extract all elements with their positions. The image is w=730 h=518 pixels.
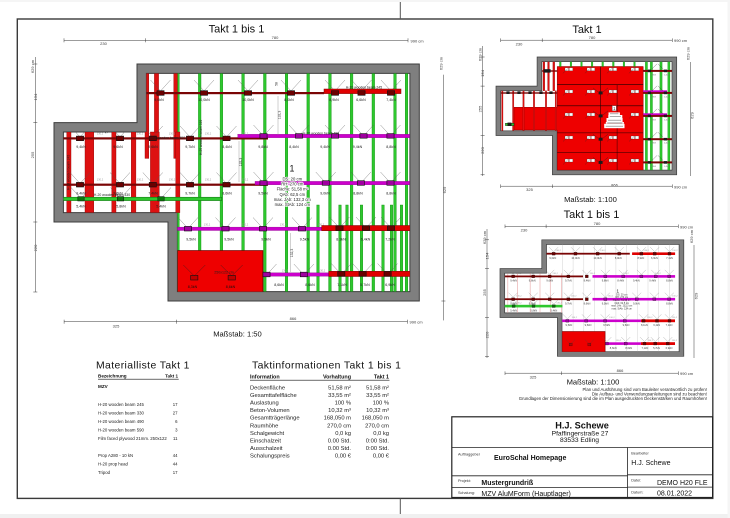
svg-text:0,00 €: 0,00 € [373,453,390,459]
svg-text:990 cm: 990 cm [674,38,688,43]
svg-text:51,58 m²: 51,58 m² [366,386,389,392]
svg-text:Schalungspreis: Schalungspreis [250,453,290,459]
svg-text:9,4kN: 9,4kN [76,191,86,195]
svg-text:130,2: 130,2 [571,317,577,319]
svg-text:9,6kN: 9,6kN [529,279,536,283]
svg-text:154: 154 [480,69,485,76]
svg-text:Grundlagen der Dimensionierung: Grundlagen der Dimensionierung sind die … [519,396,707,401]
svg-text:629: 629 [693,292,698,299]
svg-text:130,2: 130,2 [516,296,522,298]
svg-text:H-20 wooden beam 330: H-20 wooden beam 330 [199,120,203,155]
svg-text:130,2: 130,2 [647,317,653,319]
svg-text:H-20 wooden beam 245: H-20 wooden beam 245 [346,85,382,89]
svg-text:990 cm: 990 cm [411,38,425,43]
svg-text:990 cm: 990 cm [410,320,424,325]
svg-text:Prop A280 - 10 kN: Prop A280 - 10 kN [98,453,133,458]
svg-text:5,4kN: 5,4kN [76,205,86,209]
svg-text:9,4kN: 9,4kN [353,145,363,149]
svg-text:Gesamtträgerlänge: Gesamtträgerlänge [250,416,300,422]
svg-text:130,2: 130,2 [242,222,249,226]
svg-text:130,2: 130,2 [97,178,104,182]
svg-text:130,2: 130,2 [137,178,144,182]
svg-text:9,4kN: 9,4kN [510,279,517,283]
svg-text:866: 866 [617,368,624,373]
svg-text:8,4kN: 8,4kN [222,145,232,149]
svg-text:220: 220 [33,244,38,251]
svg-text:8,6kN: 8,6kN [610,346,617,350]
svg-text:Takt 1 bis 1: Takt 1 bis 1 [564,209,620,221]
svg-text:8,8kN: 8,8kN [353,191,363,195]
svg-text:6,6kN: 6,6kN [356,98,366,102]
svg-text:H-20 wooden beam 330: H-20 wooden beam 330 [98,411,144,416]
svg-text:8,6kN: 8,6kN [274,283,284,287]
svg-text:130,2: 130,2 [280,222,287,226]
svg-text:6,9kN: 6,9kN [385,283,395,287]
svg-text:130,2: 130,2 [608,296,614,298]
svg-text:Bezeichnung: Bezeichnung [98,374,127,379]
svg-text:10,32 m³: 10,32 m³ [328,408,351,414]
svg-text:Takt 1: Takt 1 [374,374,389,380]
svg-text:255: 255 [478,105,483,112]
svg-text:33,55 m²: 33,55 m² [328,393,351,399]
svg-text:9,7kN: 9,7kN [185,191,195,195]
svg-text:9,5kN: 9,5kN [603,323,610,327]
svg-text:866: 866 [611,183,618,188]
svg-text:230: 230 [100,41,107,46]
svg-text:7,2kN: 7,2kN [666,323,673,327]
svg-text:Einschalzeit: Einschalzeit [250,438,281,444]
svg-text:5,8kN: 5,8kN [651,143,657,145]
svg-text:Maßstab: 1:100: Maßstab: 1:100 [567,378,620,387]
svg-text:130,2: 130,2 [672,250,678,252]
svg-text:325: 325 [526,187,533,192]
svg-text:Mustergrundriß: Mustergrundriß [481,480,533,487]
svg-text:8,6kN: 8,6kN [305,283,315,287]
svg-text:5,4kN: 5,4kN [550,308,557,312]
svg-text:Ausschalzeit: Ausschalzeit [250,446,283,452]
svg-text:866: 866 [290,316,297,321]
svg-text:255: 255 [482,288,487,295]
svg-text:0.00 Std.: 0.00 Std. [328,446,352,452]
svg-text:5,4kN: 5,4kN [664,96,670,98]
svg-text:0,00 €: 0,00 € [335,453,352,459]
svg-text:8,9kN: 8,9kN [329,98,339,102]
svg-text:Auslastung: Auslastung [250,401,279,407]
svg-text:130,2: 130,2 [590,273,596,275]
svg-text:5,4kN: 5,4kN [156,205,166,209]
svg-text:6,9kN: 6,9kN [666,346,673,350]
svg-text:8,1kN: 8,1kN [336,237,346,241]
svg-text:Takt 1: Takt 1 [572,24,601,36]
svg-text:990 cm: 990 cm [680,371,694,376]
svg-text:MZV: MZV [98,384,109,389]
svg-text:27: 27 [173,411,178,416]
svg-text:10,0kN: 10,0kN [242,98,254,102]
svg-text:8,0kN: 8,0kN [615,256,622,260]
svg-text:629: 629 [442,186,447,193]
svg-text:H-20 wooden beam 245: H-20 wooden beam 245 [98,402,144,407]
svg-text:51,58 m²: 51,58 m² [328,386,351,392]
svg-text:8,4kN: 8,4kN [617,279,624,283]
svg-text:9,5kN: 9,5kN [566,323,573,327]
svg-text:8,6kN: 8,6kN [625,346,632,350]
svg-text:5,8kN: 5,8kN [651,96,657,98]
svg-text:DEMO H20 FLE: DEMO H20 FLE [657,480,708,487]
svg-text:6,4kN: 6,4kN [653,323,660,327]
svg-text:990 cm: 990 cm [674,184,688,189]
svg-text:130,2: 130,2 [516,303,522,305]
svg-text:8,8kN: 8,8kN [666,279,673,283]
svg-text:9,0kN: 9,0kN [633,301,640,305]
svg-text:130,2: 130,2 [205,178,212,182]
svg-text:130,2: 130,2 [242,132,249,136]
svg-text:130,2: 130,2 [616,340,622,342]
svg-text:780: 780 [272,35,279,40]
svg-text:8,1kN: 8,1kN [641,323,648,327]
svg-text:130,2: 130,2 [169,178,176,182]
svg-text:132,3: 132,3 [278,111,282,120]
svg-text:154: 154 [484,252,489,259]
svg-text:9,4kN: 9,4kN [649,279,656,283]
svg-text:Raumhöhe: Raumhöhe [250,423,278,429]
svg-text:629 cm: 629 cm [689,229,694,243]
svg-text:270,0 cm: 270,0 cm [327,423,351,429]
svg-text:H.J. Schewe: H.J. Schewe [555,421,609,431]
svg-text:33,55 m²: 33,55 m² [366,393,389,399]
svg-text:9,5kN: 9,5kN [224,237,234,241]
svg-text:17: 17 [173,402,178,407]
svg-text:Takt 1: Takt 1 [165,374,178,379]
svg-text:5,7kN: 5,7kN [653,346,660,350]
svg-text:100 %: 100 % [373,401,389,407]
svg-text:9,7kN: 9,7kN [185,145,195,149]
svg-text:154: 154 [33,93,38,100]
svg-text:130,2: 130,2 [600,250,606,252]
svg-text:7,1kN: 7,1kN [337,283,347,287]
svg-text:Maßstab: 1:50: Maßstab: 1:50 [213,329,262,338]
svg-text:9,5kN: 9,5kN [623,323,630,327]
svg-text:230: 230 [521,228,528,233]
svg-text:255: 255 [30,151,35,158]
svg-text:10,32 m³: 10,32 m³ [366,408,389,414]
svg-text:Film faced plywood 21mm. 250x1: Film faced plywood 21mm. 250x122 [98,436,167,441]
svg-text:H-20 wooden beam 590: H-20 wooden beam 590 [98,428,144,433]
svg-text:Gesamttafelfläche: Gesamttafelfläche [250,393,297,399]
svg-text:1: 1 [290,164,295,174]
svg-text:9,7kN: 9,7kN [565,301,572,305]
svg-text:Deckenfläche: Deckenfläche [250,386,285,392]
svg-text:132,3: 132,3 [239,158,243,167]
svg-text:0:00 Std.: 0:00 Std. [366,438,390,444]
svg-text:0,0 kg: 0,0 kg [335,431,351,437]
svg-text:5,4kN: 5,4kN [664,143,670,145]
svg-text:0.00 Std.: 0.00 Std. [328,438,352,444]
svg-text:130,2: 130,2 [655,273,661,275]
svg-text:9,6kN: 9,6kN [546,279,553,283]
svg-text:6,4kN: 6,4kN [361,237,371,241]
svg-text:130,2: 130,2 [571,296,577,298]
svg-text:0:00 Std.: 0:00 Std. [366,446,390,452]
svg-text:130,2: 130,2 [282,269,289,273]
svg-text:0,0 kg: 0,0 kg [373,431,389,437]
svg-text:9,5kN: 9,5kN [602,301,609,305]
svg-text:132,3: 132,3 [290,249,294,258]
svg-text:130,2: 130,2 [552,273,558,275]
svg-text:130,2: 130,2 [319,269,326,273]
svg-text:8,4kN: 8,4kN [289,145,299,149]
svg-text:MZV AluMForm (Hauptlager): MZV AluMForm (Hauptlager) [481,491,570,498]
svg-text:9,5kN: 9,5kN [585,323,592,327]
svg-text:270,0 cm: 270,0 cm [365,423,389,429]
svg-text:9,4kN: 9,4kN [320,145,330,149]
svg-text:10,0kN: 10,0kN [198,98,210,102]
svg-text:250x122 cm: 250x122 cm [214,270,234,274]
svg-text:9,5kN: 9,5kN [186,237,196,241]
svg-text:Takt 1 bis 1: Takt 1 bis 1 [209,24,265,36]
svg-text:990 cm: 990 cm [680,224,694,229]
svg-text:9,6kN: 9,6kN [113,145,123,149]
svg-text:7,4kN: 7,4kN [666,256,673,260]
svg-text:5,4kN: 5,4kN [510,308,517,312]
svg-text:5,7kN: 5,7kN [360,283,370,287]
svg-text:8,8kN: 8,8kN [386,191,396,195]
svg-text:130,2: 130,2 [643,250,649,252]
svg-text:8,6kN: 8,6kN [226,285,236,289]
svg-text:EuroSchal Homepage: EuroSchal Homepage [494,455,566,462]
svg-text:8,8kN: 8,8kN [666,301,673,305]
svg-text:168,050 m: 168,050 m [324,416,352,422]
svg-text:max. StAb: 124 cm: max. StAb: 124 cm [275,202,311,207]
svg-text:Schalung:: Schalung: [458,491,475,495]
svg-text:130,2: 130,2 [555,250,561,252]
svg-text:7,4kN: 7,4kN [386,98,396,102]
svg-text:7,2kN: 7,2kN [385,237,395,241]
svg-text:Information: Information [250,374,280,380]
svg-text:230: 230 [516,42,523,47]
svg-text:325: 325 [113,324,120,329]
svg-text:H-20 wooden beam 330: H-20 wooden beam 330 [94,193,130,197]
svg-text:Tripod: Tripod [98,470,111,475]
svg-text:H.J. Schewe: H.J. Schewe [631,460,670,467]
svg-text:780: 780 [589,35,596,40]
svg-text:9,4kN: 9,4kN [76,145,86,149]
svg-text:8,0kN: 8,0kN [284,98,294,102]
svg-text:9,6kN: 9,6kN [148,145,158,149]
svg-text:10,0kN: 10,0kN [571,256,579,260]
svg-text:H-20 wooden beam 590: H-20 wooden beam 590 [149,136,185,140]
svg-text:H-20 wooden beam 490: H-20 wooden beam 490 [98,419,144,424]
svg-text:9,7kN: 9,7kN [565,279,572,283]
svg-text:6,6kN: 6,6kN [651,256,658,260]
svg-text:629 cm: 629 cm [438,56,443,70]
svg-text:8,6kN: 8,6kN [222,191,232,195]
svg-text:168,050 m: 168,050 m [362,416,390,422]
svg-text:Maßstab: 1:100: Maßstab: 1:100 [564,195,617,204]
svg-text:629 cm: 629 cm [478,47,483,61]
svg-text:130,2: 130,2 [672,317,678,319]
svg-text:130,2: 130,2 [609,317,615,319]
svg-text:Materialliste Takt 1: Materialliste Takt 1 [96,361,190,372]
svg-text:17: 17 [173,470,178,475]
svg-text:Projekt:: Projekt: [458,479,471,483]
svg-text:130,2: 130,2 [672,340,678,342]
svg-text:5,8kN: 5,8kN [651,166,657,168]
svg-text:130,2: 130,2 [623,273,629,275]
svg-text:9,0kN: 9,0kN [549,256,556,260]
svg-text:780: 780 [594,221,601,226]
svg-text:325: 325 [530,374,537,379]
svg-text:130,2: 130,2 [647,340,653,342]
svg-text:5,8kN: 5,8kN [651,74,657,76]
svg-text:130,2: 130,2 [97,132,104,136]
svg-text:9,0kN: 9,0kN [320,191,330,195]
svg-text:7,4kN: 7,4kN [148,191,158,195]
svg-text:8,9kN: 8,9kN [637,256,644,260]
svg-text:Schalgewicht: Schalgewicht [250,431,285,437]
svg-text:44: 44 [173,462,178,467]
svg-text:Auftraggeber: Auftraggeber [458,452,481,456]
svg-text:9,5kN: 9,5kN [258,191,268,195]
svg-text:44: 44 [173,453,178,458]
svg-text:130,2: 130,2 [556,303,562,305]
svg-text:5,4kN: 5,4kN [664,166,670,168]
svg-text:H-20 prop head: H-20 prop head [98,462,128,467]
svg-text:5,8kN: 5,8kN [530,308,537,312]
svg-text:08.01.2022: 08.01.2022 [657,491,692,498]
svg-text:10,0kN: 10,0kN [593,256,601,260]
svg-text:5,8kN: 5,8kN [651,119,657,121]
svg-text:5,4kN: 5,4kN [664,119,670,121]
svg-text:Datei:: Datei: [631,478,641,482]
svg-text:11: 11 [173,436,178,441]
svg-text:7,1kN: 7,1kN [642,346,649,350]
svg-text:Datum:: Datum: [631,490,643,494]
svg-text:130,2: 130,2 [242,178,249,182]
svg-text:629 cm: 629 cm [482,230,487,244]
svg-text:83533 Edling: 83533 Edling [560,437,599,444]
svg-text:H-20 wooden beam 490: H-20 wooden beam 490 [303,131,339,135]
svg-text:8,6kN: 8,6kN [584,301,591,305]
svg-text:max. StAb: 124 cm: max. StAb: 124 cm [612,307,632,310]
svg-text:Beton-Volumen: Beton-Volumen [250,408,290,414]
svg-text:629 cm: 629 cm [30,59,35,73]
svg-text:629 cm: 629 cm [685,46,690,60]
svg-text:629: 629 [690,111,695,118]
svg-text:130,2: 130,2 [672,296,678,298]
svg-text:8,3kN: 8,3kN [188,285,198,289]
svg-text:220: 220 [480,146,485,153]
svg-text:9,5kN: 9,5kN [261,237,271,241]
svg-text:H-20 wooden beam 245: H-20 wooden beam 245 [67,155,71,190]
svg-text:8,8kN: 8,8kN [386,145,396,149]
svg-text:Vorhaltung: Vorhaltung [323,374,351,380]
svg-text:5,4kN: 5,4kN [664,74,670,76]
svg-text:220: 220 [484,331,489,338]
svg-text:130,2: 130,2 [205,132,212,136]
svg-text:8,4kN: 8,4kN [584,279,591,283]
svg-text:Taktinformationen Takt 1 bis: Taktinformationen Takt 1 bis 1 [252,361,401,372]
svg-text:58: 58 [275,82,279,86]
svg-text:9,8kN: 9,8kN [602,279,609,283]
svg-text:9,0kN: 9,0kN [154,98,164,102]
svg-text:5,8kN: 5,8kN [116,205,126,209]
svg-text:130,2: 130,2 [204,222,211,226]
svg-text:Bearbeiter: Bearbeiter [631,452,649,456]
svg-text:100 %: 100 % [335,401,351,407]
svg-text:130,2: 130,2 [137,132,144,136]
svg-text:9,4kN: 9,4kN [633,279,640,283]
svg-text:9,8kN: 9,8kN [258,145,268,149]
svg-text:130,2: 130,2 [169,132,176,136]
svg-text:9,5kN: 9,5kN [300,237,310,241]
